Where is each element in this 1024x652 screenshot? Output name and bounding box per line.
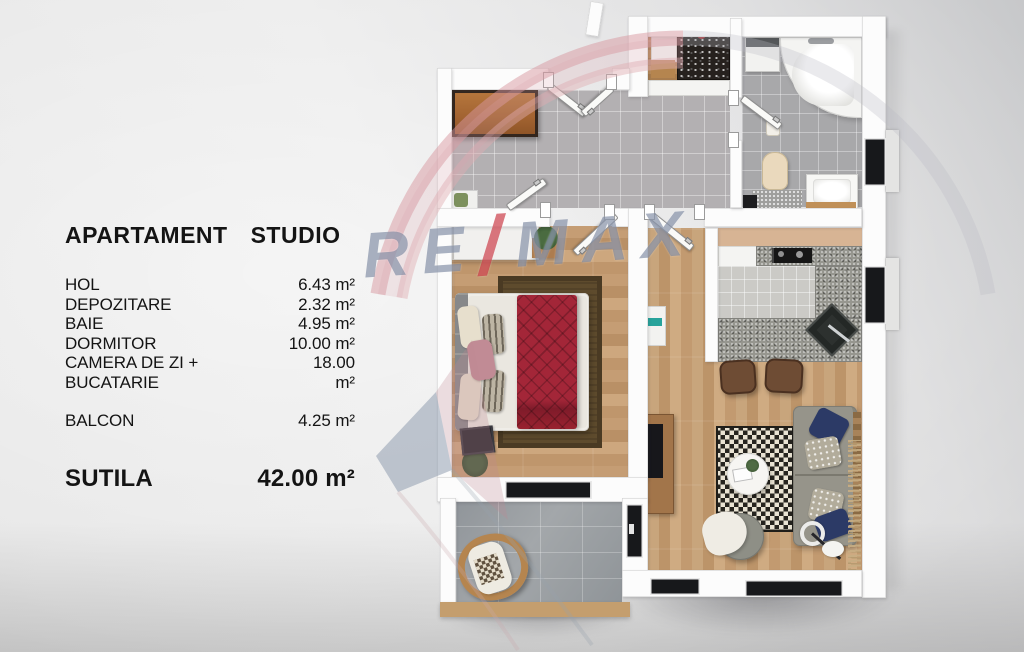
room-name: BAIE xyxy=(65,314,103,334)
door-jamb xyxy=(728,90,739,106)
wall-bedroom-right xyxy=(628,208,648,480)
floorplan-sheet: RE/MAX APARTAMENTSTUDIO HOL 6.43 m² DEPO… xyxy=(0,0,1024,652)
page-title: APARTAMENTSTUDIO xyxy=(65,222,355,249)
wall-hall-top-left xyxy=(437,68,549,90)
cooktop-burner-1 xyxy=(778,251,784,257)
room-name: DEPOZITARE xyxy=(65,295,171,315)
balcony-door-handle xyxy=(629,524,634,534)
wall-bath-left-top xyxy=(730,18,742,98)
dried-plant-decor xyxy=(848,440,861,570)
bathtub-basin xyxy=(792,44,854,106)
tv xyxy=(648,424,663,478)
bath-mat xyxy=(752,190,802,209)
room-name: DORMITOR xyxy=(65,334,156,354)
bathroom-window-sill xyxy=(886,130,899,192)
storage-sliding-doors xyxy=(648,80,730,96)
hall-cabinet xyxy=(452,90,538,137)
bedroom-wardrobe xyxy=(452,222,539,260)
room-area: 2.32 m² xyxy=(298,295,355,315)
balcony-sill xyxy=(440,602,630,617)
bar-stool-1 xyxy=(719,359,757,395)
toilet xyxy=(762,152,788,190)
room-name: HOL xyxy=(65,275,100,295)
washing-machine xyxy=(745,37,780,72)
legend: APARTAMENTSTUDIO HOL 6.43 m² DEPOZITARE … xyxy=(65,222,355,492)
living-window-sill xyxy=(886,258,899,330)
radiator-teal-stripe xyxy=(646,318,662,326)
door-jamb xyxy=(543,72,554,88)
legend-row-camera-de-zi: CAMERA DE ZI + BUCATARIE 18.00 m² xyxy=(65,353,355,392)
legend-row-depozitare: DEPOZITARE 2.32 m² xyxy=(65,295,355,315)
bathroom-window xyxy=(864,138,886,186)
room-area: 18.00 m² xyxy=(290,353,355,392)
door-jamb xyxy=(694,204,705,220)
total-name: SUTILA xyxy=(65,466,153,492)
wall-kitchen-panel xyxy=(705,228,718,362)
kitchen-floor xyxy=(718,266,815,318)
room-area: 10.00 m² xyxy=(289,334,355,354)
living-window-right xyxy=(864,266,886,324)
bedroom-balcony-window xyxy=(505,481,592,499)
hall-doormat-plant xyxy=(454,193,468,207)
wall-bath-left-bottom xyxy=(730,140,742,208)
room-area: 6.43 m² xyxy=(298,275,355,295)
wall-exterior-left xyxy=(437,68,452,500)
bedroom-plant xyxy=(534,226,558,250)
bed-blanket-red xyxy=(517,295,577,429)
legend-row-dormitor: DORMITOR 10.00 m² xyxy=(65,334,355,354)
door-jamb xyxy=(606,74,617,90)
legend-row-balcon: BALCON 4.25 m² xyxy=(65,411,355,431)
door-jamb xyxy=(540,202,551,218)
door-jamb xyxy=(604,204,615,220)
room-name: CAMERA DE ZI + BUCATARIE xyxy=(65,353,290,392)
door-jamb xyxy=(728,132,739,148)
bathtub-faucet xyxy=(808,38,834,44)
building-shadow-bottom xyxy=(620,592,900,636)
legend-row-total: SUTILA 42.00 m² xyxy=(65,466,355,492)
total-area: 42.00 m² xyxy=(257,466,355,492)
sink-basin xyxy=(813,179,851,203)
door-jamb xyxy=(644,204,655,220)
kitchen-cabinet-white xyxy=(718,246,758,268)
wall-top xyxy=(628,16,886,37)
title-word-1: APARTAMENT xyxy=(65,222,228,248)
wall-mid-left xyxy=(437,208,550,227)
wall-balcony-left xyxy=(440,498,456,612)
wall-storage-left xyxy=(628,16,648,97)
sofa-pillow-dotted-top xyxy=(804,435,843,470)
bar-stool-2 xyxy=(764,358,804,394)
room-area: 4.25 m² xyxy=(298,411,355,431)
exterior-wall-stub xyxy=(585,1,603,37)
room-name: BALCON xyxy=(65,411,134,431)
side-table xyxy=(822,541,844,557)
living-window-1 xyxy=(650,578,700,595)
coffee-table-plant xyxy=(746,459,759,472)
bedroom-picture-frame xyxy=(460,425,496,455)
storage-shelf-wood xyxy=(651,60,675,78)
living-window-2 xyxy=(745,580,843,597)
legend-row-hol: HOL 6.43 m² xyxy=(65,275,355,295)
sofa-seat-divider xyxy=(795,474,851,476)
wall-mid-right xyxy=(704,208,862,227)
kitchen-backsplash xyxy=(718,228,862,246)
title-word-2: STUDIO xyxy=(251,222,341,248)
cooktop-burner-2 xyxy=(796,251,803,258)
legend-row-baie: BAIE 4.95 m² xyxy=(65,314,355,334)
room-area: 4.95 m² xyxy=(298,314,355,334)
